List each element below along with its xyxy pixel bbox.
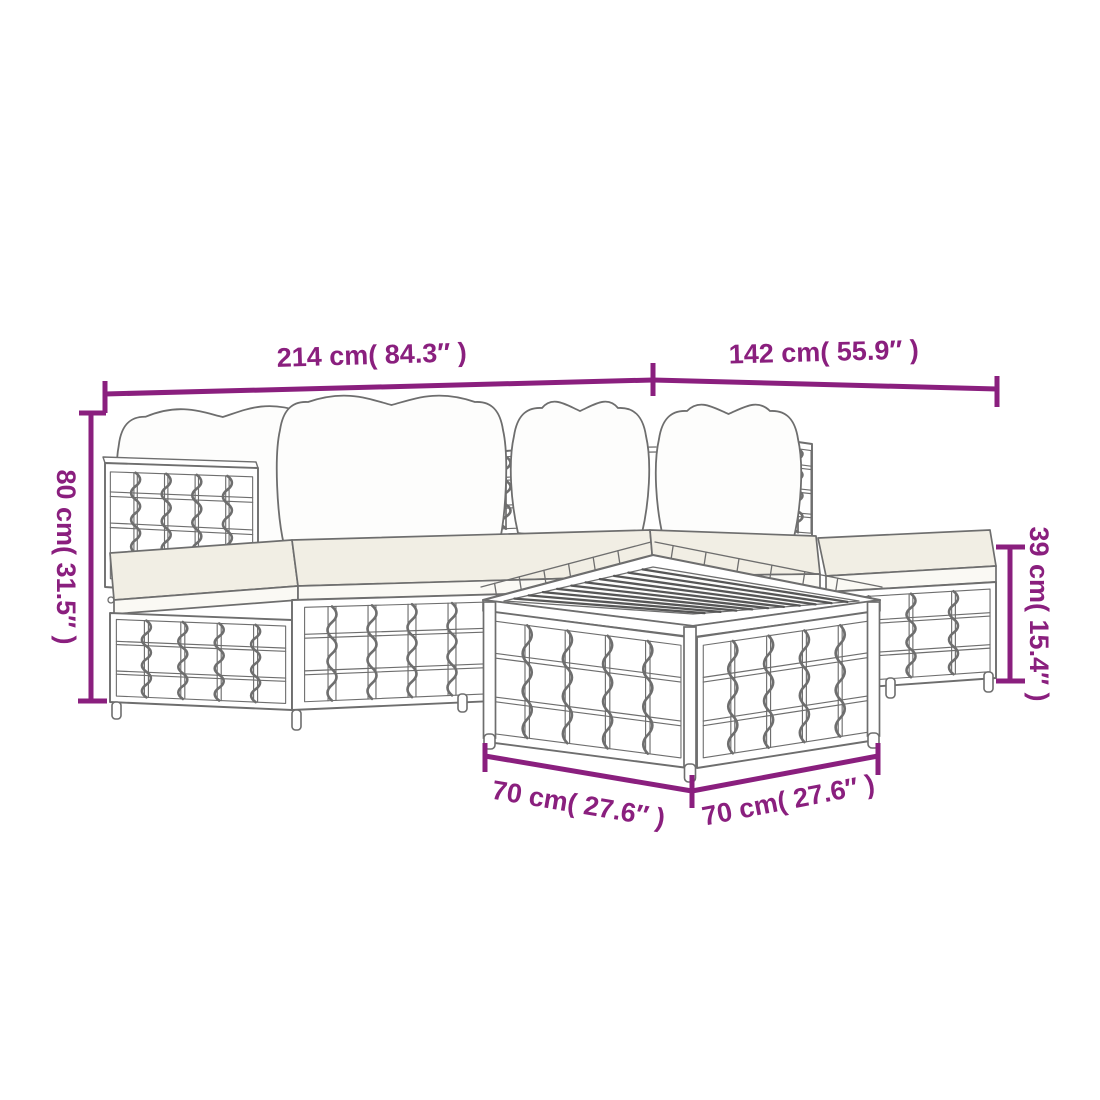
panel-frame xyxy=(487,611,688,768)
furniture-leg xyxy=(886,678,895,698)
furniture-leg xyxy=(458,694,467,712)
dimension-label-sofa-total-length: 214 cm( 84.3″ ) xyxy=(276,337,467,373)
furniture-leg xyxy=(292,710,301,730)
furniture-illustration xyxy=(103,396,996,782)
table-face-left xyxy=(487,611,688,768)
table-face-right xyxy=(697,611,876,768)
dimension-label-table-depth: 70 cm( 27.6″ ) xyxy=(700,769,878,832)
base-left xyxy=(110,613,292,710)
table-leg xyxy=(684,627,696,767)
dimension-ottoman-height: 39 cm( 15.4″ ) xyxy=(996,526,1054,701)
table-leg xyxy=(868,602,880,736)
table-leg xyxy=(484,602,496,738)
back-cushion xyxy=(656,405,801,542)
product-dimension-diagram: 214 cm( 84.3″ ) 142 cm( 55.9″ ) 80 cm( 3… xyxy=(0,0,1100,1100)
back-cushion xyxy=(277,396,506,550)
dimension-label-chaise-side-length: 142 cm( 55.9″ ) xyxy=(728,335,919,370)
back-cushion xyxy=(511,402,649,538)
dimension-line xyxy=(653,380,997,389)
diagram-canvas: 214 cm( 84.3″ ) 142 cm( 55.9″ ) 80 cm( 3… xyxy=(0,0,1100,1100)
dimension-back-height: 80 cm( 31.5″ ) xyxy=(51,413,107,701)
furniture-leg xyxy=(112,702,121,719)
dimension-label-back-height: 80 cm( 31.5″ ) xyxy=(51,469,81,644)
dimension-chaise-side-length: 142 cm( 55.9″ ) xyxy=(653,335,997,407)
furniture-leg xyxy=(984,672,993,692)
dimension-label-ottoman-height: 39 cm( 15.4″ ) xyxy=(1024,526,1054,701)
panel-frame xyxy=(110,613,292,710)
dimension-line xyxy=(105,380,653,394)
